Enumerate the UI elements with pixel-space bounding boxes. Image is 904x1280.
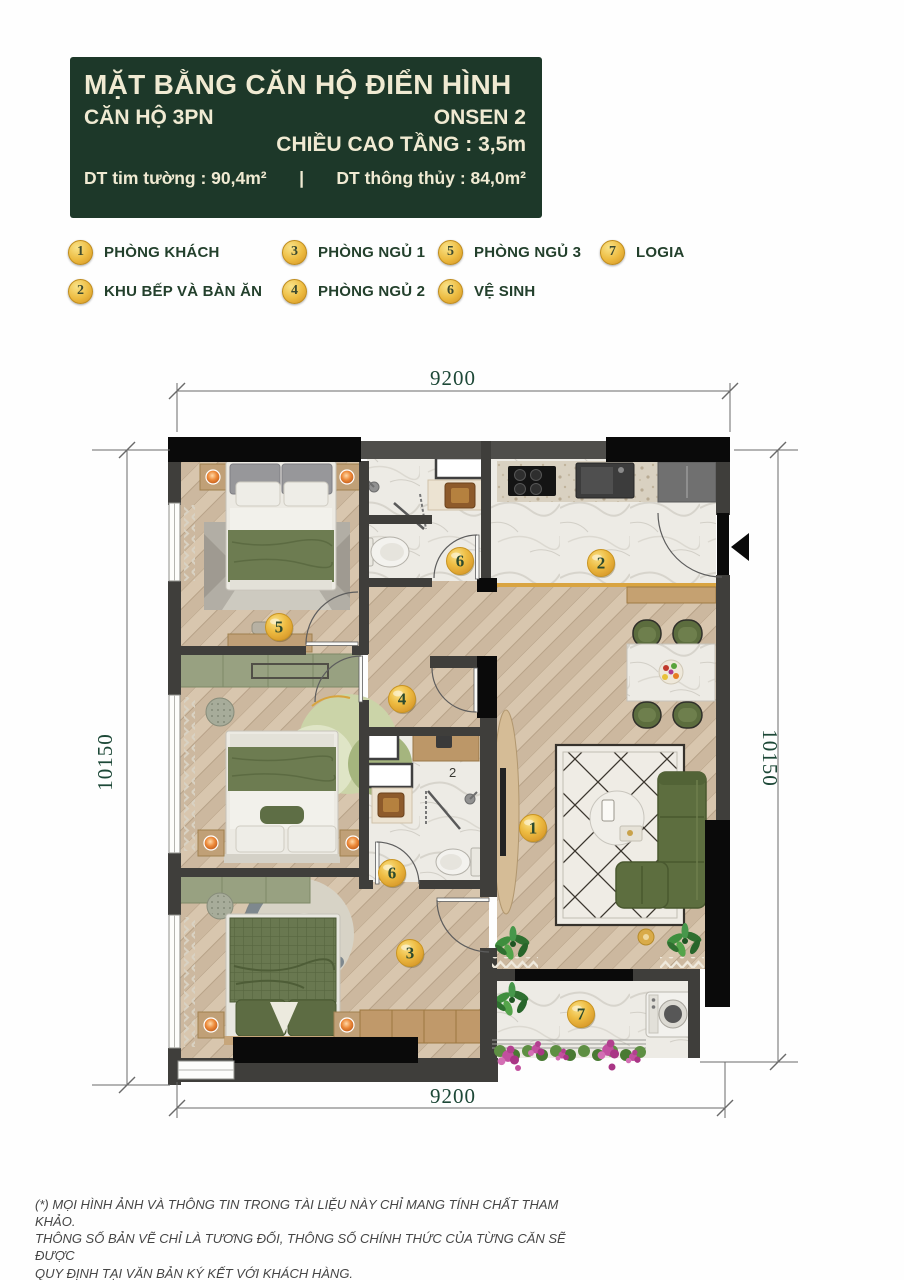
legend-item-5: 5PHÒNG NGỦ 3 [438, 240, 600, 264]
legend-label: VỆ SINH [474, 283, 535, 300]
legend-number-badge: 6 [438, 279, 463, 304]
unit-type-label: CĂN HỘ 3PN [84, 106, 214, 130]
legend-label: LOGIA [636, 244, 685, 261]
corridor-floor [368, 566, 480, 731]
legend-label: PHÒNG NGỦ 3 [474, 244, 581, 261]
floor-height-label: CHIỀU CAO TẦNG : 3,5m [84, 133, 526, 157]
door-leaf [306, 642, 358, 646]
door-leaf [474, 668, 478, 712]
legend-item-1: 1PHÒNG KHÁCH [68, 240, 282, 264]
bathroom-2-number: 2 [449, 765, 456, 780]
svg-text:7: 7 [577, 1005, 586, 1024]
lamp-icon [340, 470, 354, 484]
lamp-icon [340, 1018, 354, 1032]
shaft [436, 458, 488, 478]
kitchen-appliances [508, 462, 716, 502]
svg-text:1: 1 [529, 819, 538, 838]
header-panel: MẶT BẰNG CĂN HỘ ĐIỂN HÌNH CĂN HỘ 3PN ONS… [70, 57, 542, 218]
shaft [368, 764, 412, 787]
double-bed [224, 914, 342, 1045]
toilet [363, 537, 409, 567]
tv [500, 768, 506, 856]
legend-number-badge: 3 [282, 240, 307, 265]
shaft [368, 733, 398, 759]
kitchen-threshold-strip [478, 583, 716, 587]
disclaimer-line: THÔNG SỐ BẢN VẼ CHỈ LÀ TƯƠNG ĐỐI, THÔNG … [35, 1230, 580, 1264]
svg-text:6: 6 [388, 864, 397, 883]
coffee-table [590, 791, 644, 845]
brochure-page: MẶT BẰNG CĂN HỘ ĐIỂN HÌNH CĂN HỘ 3PN ONS… [0, 0, 904, 1280]
curtain [184, 917, 195, 1047]
walkway-floor [478, 587, 497, 656]
sideboard [627, 587, 716, 603]
legend-item-3: 3PHÒNG NGỦ 1 [282, 240, 438, 264]
lamp-icon [206, 470, 220, 484]
svg-text:6: 6 [456, 552, 465, 571]
entry-door-leaf [717, 513, 729, 575]
legend-number-badge: 2 [68, 279, 93, 304]
legend-number-badge: 4 [282, 279, 307, 304]
svg-text:2: 2 [597, 554, 606, 573]
door-leaf [359, 656, 363, 702]
svg-text:5: 5 [275, 618, 284, 637]
legend-item-6: 6VỆ SINH [438, 279, 600, 303]
legend-number-badge: 1 [68, 240, 93, 265]
door-leaf [476, 535, 480, 579]
project-name-label: ONSEN 2 [434, 106, 526, 130]
dim-left: 10150 [93, 733, 117, 791]
disclaimer-line: (*) MỌI HÌNH ẢNH VÀ THÔNG TIN TRONG TÀI … [35, 1196, 580, 1230]
disclaimer-line: QUY ĐỊNH TẠI VĂN BẢN KÝ KẾT VỚI KHÁCH HÀ… [35, 1265, 580, 1280]
legend-item-7: 7LOGIA [600, 240, 685, 264]
room-legend: 1PHÒNG KHÁCH2KHU BẾP VÀ BÀN ĂN3PHÒNG NGỦ… [68, 240, 685, 303]
svg-text:4: 4 [398, 690, 407, 709]
legend-label: PHÒNG KHÁCH [104, 244, 220, 261]
fruit-bowl [659, 660, 683, 684]
double-bed [226, 461, 336, 590]
legend-number-badge: 7 [600, 240, 625, 265]
curtain [660, 957, 704, 968]
floor-plan: 9200 9200 10150 10150 2 12345667 [75, 370, 800, 1140]
curtain [184, 697, 195, 851]
area-divider: | [299, 168, 304, 189]
dim-top: 9200 [430, 370, 476, 390]
curtain [184, 505, 195, 581]
washing-machine [646, 992, 692, 1037]
gross-area-label: DT tim tường : 90,4m² [84, 168, 267, 189]
legend-number-badge: 5 [438, 240, 463, 265]
legend-item-4: 4PHÒNG NGỦ 2 [282, 279, 438, 303]
svg-text:3: 3 [406, 944, 415, 963]
toilet [436, 848, 481, 876]
page-title: MẶT BẰNG CĂN HỘ ĐIỂN HÌNH [84, 70, 526, 99]
dim-bottom: 9200 [430, 1084, 476, 1108]
legend-label: KHU BẾP VÀ BÀN ĂN [104, 283, 262, 300]
lamp-icon [346, 836, 360, 850]
dim-right: 10150 [758, 729, 782, 787]
door-leaf [376, 842, 380, 884]
curtain [492, 957, 538, 968]
lamp-icon [204, 1018, 218, 1032]
door-leaf [437, 898, 489, 902]
legend-item-2: 2KHU BẾP VÀ BÀN ĂN [68, 279, 282, 303]
lamp-icon [204, 836, 218, 850]
entry-arrow-icon [731, 533, 749, 561]
net-area-label: DT thông thủy : 84,0m² [336, 168, 526, 189]
legend-label: PHÒNG NGỦ 1 [318, 244, 425, 261]
disclaimer: (*) MỌI HÌNH ẢNH VÀ THÔNG TIN TRONG TÀI … [35, 1196, 580, 1280]
wardrobe [178, 654, 360, 687]
wardrobe [178, 876, 310, 903]
legend-label: PHÒNG NGỦ 2 [318, 283, 425, 300]
double-bed [224, 731, 340, 863]
